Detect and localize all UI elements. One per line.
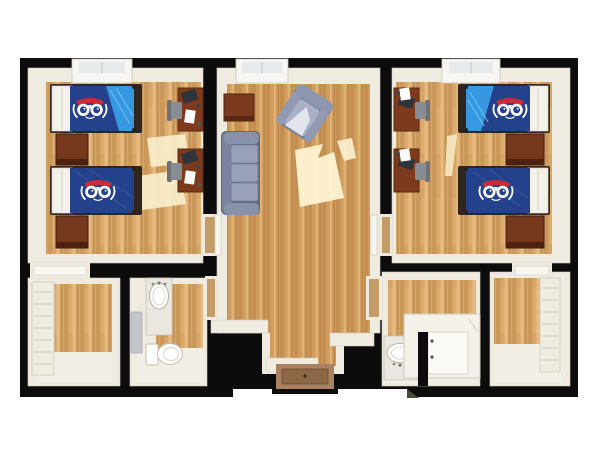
dresser-front	[56, 159, 88, 165]
bed-right-1	[458, 84, 550, 133]
bedroom-left-window	[72, 59, 132, 83]
faucet-handle	[164, 283, 167, 286]
sofa-armrest-bottom	[224, 203, 259, 215]
door-leaf	[515, 266, 549, 275]
closet-left-shelving	[32, 282, 54, 375]
side-table-front	[224, 116, 254, 121]
bathroom-left-door	[205, 276, 217, 320]
bedroom-left-door	[203, 214, 221, 256]
papers	[399, 87, 411, 100]
desk-item	[196, 104, 200, 108]
toilet-tank	[146, 344, 158, 365]
faucet	[398, 363, 401, 366]
dresser-left-2	[56, 216, 88, 248]
door-leaf	[371, 215, 377, 255]
door-threshold	[369, 279, 379, 317]
shower-door-handle	[430, 339, 433, 342]
bedpost	[132, 128, 136, 132]
sofa-cushion	[231, 164, 258, 182]
floor-plan-image	[0, 0, 600, 450]
door-threshold	[207, 279, 215, 317]
dresser-left-1	[56, 134, 88, 165]
faucet	[157, 281, 160, 284]
door-leaf	[215, 215, 221, 255]
sofa-cushion	[231, 145, 258, 163]
bed-right-2	[458, 166, 550, 215]
dresser-right-1	[506, 134, 544, 165]
faucet-handle	[152, 283, 155, 286]
sofa-cushion	[231, 183, 258, 201]
chair-seat	[415, 163, 426, 180]
bedpost	[464, 85, 468, 89]
papers	[184, 109, 196, 123]
bedpost	[464, 167, 468, 171]
closet-right-door	[512, 263, 552, 278]
hall-ledge-right	[330, 333, 374, 346]
mirror	[131, 312, 142, 353]
side-table	[224, 94, 254, 121]
bedroom-right-door	[371, 214, 392, 256]
shower-wall-stub	[418, 332, 428, 386]
chair-seat	[171, 163, 182, 180]
sofa-back	[222, 133, 232, 213]
dresser-front	[506, 159, 544, 165]
bed-left-1	[50, 84, 142, 133]
living-room-window	[236, 59, 288, 83]
dresser-front	[56, 242, 88, 248]
bed-left-2	[50, 166, 142, 215]
door-leaf	[34, 266, 86, 275]
papers	[399, 148, 411, 161]
dresser-right-2	[506, 216, 544, 248]
desk-item	[396, 152, 400, 156]
shelf-unit	[540, 278, 560, 372]
desk-item	[196, 165, 200, 169]
faucet-handle	[393, 363, 396, 366]
hall-ledge-left	[211, 320, 268, 333]
chair-seat	[171, 102, 182, 119]
closet-left-door	[30, 263, 90, 278]
floor-plan-svg	[0, 0, 600, 450]
desk-item	[197, 183, 201, 187]
sofa-armrest-top	[224, 132, 259, 144]
desk-item	[396, 91, 400, 95]
sofa	[221, 131, 260, 215]
chair-seat	[415, 102, 426, 119]
closet-right-shelving	[540, 278, 560, 372]
papers	[184, 170, 196, 184]
bedpost	[132, 210, 136, 214]
bedroom-right-window	[442, 59, 500, 83]
shower-door-handle	[430, 355, 433, 358]
bathroom-right-door	[366, 276, 382, 320]
closet-right-floor	[494, 278, 546, 350]
bedpost	[464, 128, 468, 132]
entry-door-stop	[303, 374, 306, 377]
bedpost	[132, 85, 136, 89]
shower-floor	[428, 332, 468, 374]
dresser-front	[506, 242, 544, 248]
bedpost	[132, 167, 136, 171]
door-threshold	[205, 217, 215, 253]
bedpost	[464, 210, 468, 214]
entry-wall-stub	[272, 389, 338, 394]
door-threshold	[382, 217, 390, 253]
desk-item	[197, 122, 201, 126]
